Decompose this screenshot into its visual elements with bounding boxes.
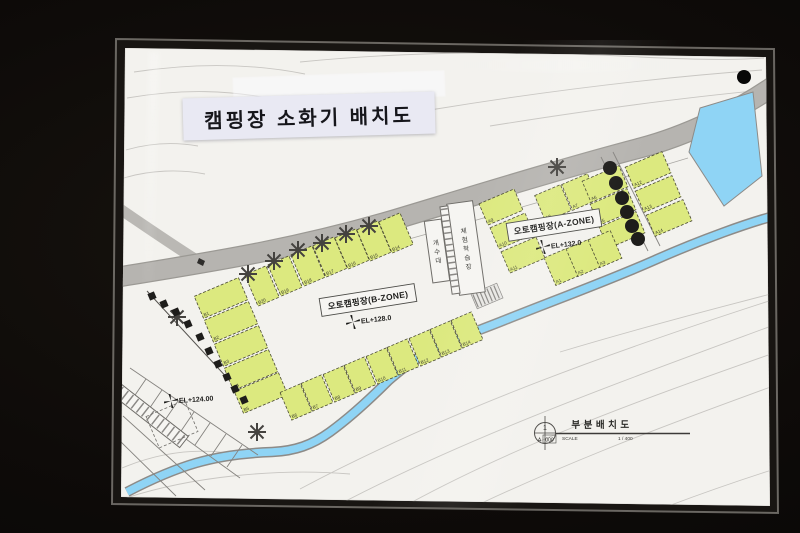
title-label: 캠핑장 소화기 배치도 xyxy=(182,91,435,140)
tree-icon xyxy=(239,265,257,283)
shrub-icon xyxy=(609,176,623,190)
pin-dot xyxy=(737,70,751,84)
tree-icon xyxy=(248,423,266,441)
scale-value: 1 / 400 xyxy=(618,436,633,442)
tree-icon xyxy=(313,234,331,252)
shrub-icon xyxy=(631,232,645,246)
photo-frame: A8A7A6A5A4A1A2A3A9A10A11A12A13A14B20B19B… xyxy=(0,0,800,533)
tree-icon xyxy=(265,252,283,270)
map-title: 캠핑장 소화기 배치도 xyxy=(204,99,414,134)
shrub-icon xyxy=(620,205,634,219)
shrub-icon xyxy=(603,161,617,175)
sheet-code-number: 000 xyxy=(545,438,554,444)
tree-icon xyxy=(360,217,378,235)
scale-label: SCALE xyxy=(562,436,578,442)
sheet-number: 1 xyxy=(543,425,547,432)
tree-icon xyxy=(548,158,566,176)
tree-icon xyxy=(289,241,307,259)
shrub-icon xyxy=(625,219,639,233)
shrub-icon xyxy=(615,191,629,205)
drawing-title: 부분배치도 xyxy=(571,419,632,431)
tree-icon xyxy=(337,225,355,243)
